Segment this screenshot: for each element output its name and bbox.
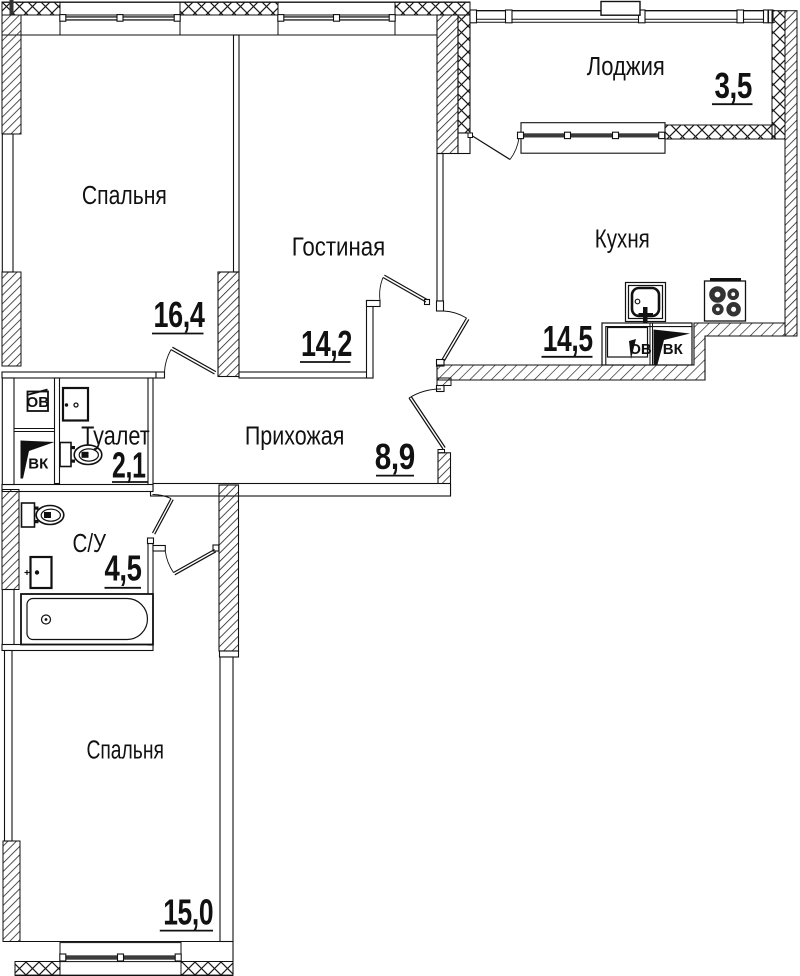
svg-text:ВК: ВК — [663, 341, 684, 358]
svg-text:Спальня: Спальня — [82, 182, 167, 210]
svg-text:15,0: 15,0 — [163, 892, 213, 933]
svg-text:Гостиная: Гостиная — [292, 234, 386, 262]
svg-text:Спальня: Спальня — [86, 737, 164, 765]
svg-text:8,9: 8,9 — [375, 436, 415, 477]
svg-text:ОВ: ОВ — [27, 394, 50, 411]
svg-text:ОВ: ОВ — [629, 341, 652, 358]
svg-text:Лоджия: Лоджия — [587, 53, 665, 81]
svg-text:4,5: 4,5 — [105, 548, 142, 589]
svg-text:Прихожая: Прихожая — [245, 423, 345, 451]
svg-text:2,1: 2,1 — [112, 444, 146, 485]
svg-text:Кухня: Кухня — [595, 226, 650, 254]
svg-text:14,5: 14,5 — [543, 318, 593, 359]
svg-text:16,4: 16,4 — [154, 294, 206, 335]
svg-text:С/У: С/У — [73, 530, 107, 558]
svg-text:ВК: ВК — [28, 456, 49, 473]
svg-text:14,2: 14,2 — [301, 323, 352, 364]
svg-text:3,5: 3,5 — [714, 65, 752, 106]
